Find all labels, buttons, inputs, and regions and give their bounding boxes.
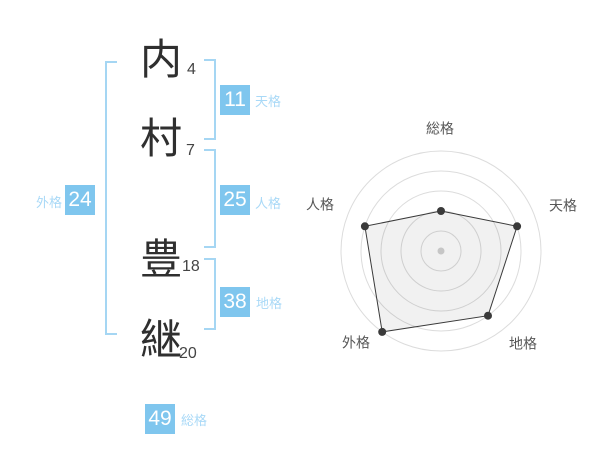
radar-data-point-0: [437, 207, 445, 215]
radar-axis-label-chikaku: 地格: [509, 337, 537, 352]
jinkaku-value-badge: 25: [220, 185, 250, 215]
name-char-2: 村: [136, 118, 186, 160]
soukaku-value-badge: 49: [145, 404, 175, 434]
gaikaku-value-badge: 24: [65, 185, 95, 215]
jinkaku-bracket: [204, 149, 216, 248]
stroke-count-2: 7: [186, 143, 195, 159]
tenkaku-value-badge: 11: [220, 85, 250, 115]
radar-center-dot: [438, 248, 445, 255]
radar-data-point-3: [378, 328, 386, 336]
radar-data-point-4: [361, 222, 369, 230]
name-analysis-page: 内 4 村 7 豊 18 継 20 11 天格 25 人格 38 地格 24 外…: [0, 0, 600, 470]
radar-axis-label-jinkaku: 人格: [306, 198, 334, 213]
chikaku-bracket: [204, 258, 216, 330]
chikaku-value-badge: 38: [220, 287, 250, 317]
chikaku-label: 地格: [256, 297, 282, 311]
radar-data-point-2: [484, 312, 492, 320]
name-char-1: 内: [136, 39, 186, 81]
radar-axis-label-gaikaku: 外格: [342, 336, 370, 351]
radar-axis-label-tenkaku: 天格: [549, 199, 577, 214]
radar-data-point-1: [513, 222, 521, 230]
gaikaku-label: 外格: [36, 196, 62, 210]
gaikaku-bracket: [105, 61, 117, 335]
stroke-count-1: 4: [187, 62, 196, 78]
tenkaku-label: 天格: [255, 95, 281, 109]
radar-axis-label-soukaku: 総格: [426, 122, 454, 137]
stroke-count-4: 20: [179, 346, 197, 362]
jinkaku-label: 人格: [255, 197, 281, 211]
radar-data-polygon: [365, 211, 517, 332]
tenkaku-bracket: [204, 59, 216, 140]
soukaku-label: 総格: [181, 414, 207, 428]
name-char-3: 豊: [136, 239, 186, 281]
stroke-count-3: 18: [182, 259, 200, 275]
